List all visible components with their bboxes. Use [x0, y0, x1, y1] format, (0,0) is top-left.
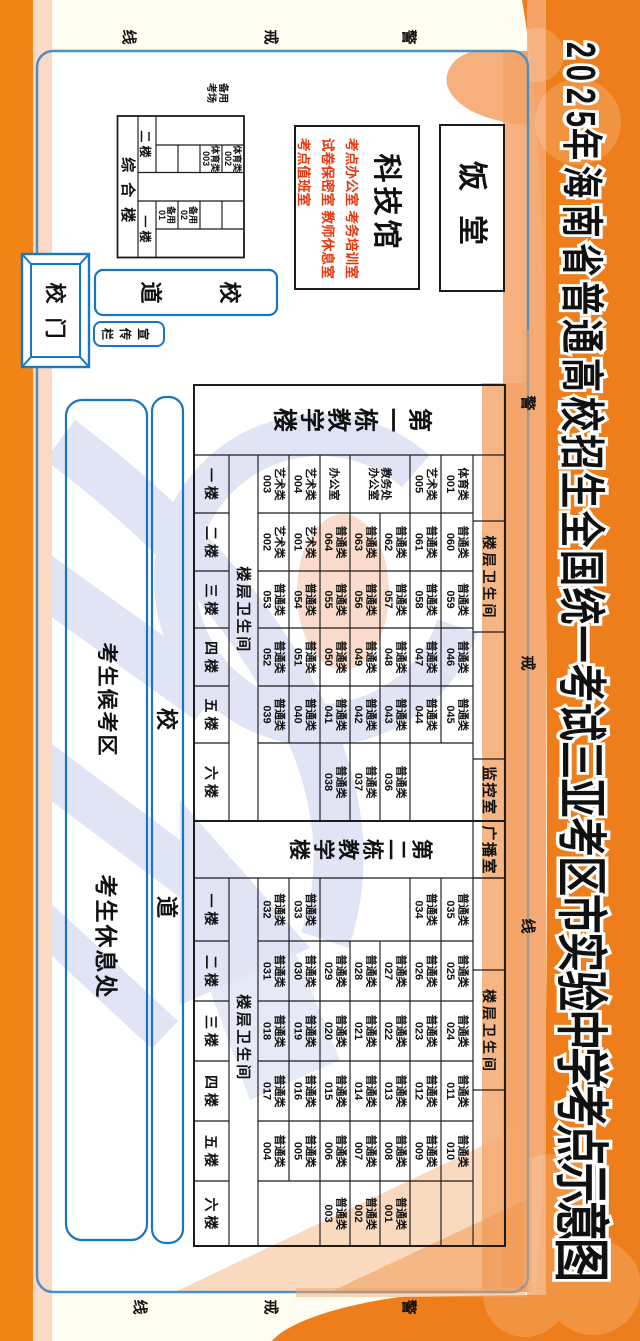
svg-text:市: 市 [552, 894, 610, 934]
svg-text:普通类: 普通类 [394, 1075, 408, 1109]
svg-text:校: 校 [556, 396, 606, 432]
svg-text:线: 线 [120, 29, 138, 44]
svg-text:警: 警 [519, 394, 537, 410]
svg-text:试卷保密室 教师休息室: 试卷保密室 教师休息室 [320, 138, 336, 279]
svg-text:考生候考区: 考生候考区 [95, 643, 119, 758]
svg-text:027: 027 [382, 962, 394, 980]
svg-text:普通类: 普通类 [273, 1015, 287, 1049]
svg-text:道: 道 [154, 896, 179, 918]
svg-text:058: 058 [412, 590, 424, 608]
svg-text:五 楼: 五 楼 [203, 699, 219, 731]
svg-text:003: 003 [260, 475, 272, 493]
svg-text:普通类: 普通类 [425, 583, 439, 617]
svg-text:01: 01 [157, 210, 167, 220]
svg-text:考: 考 [550, 1085, 610, 1127]
svg-text:050: 050 [322, 648, 334, 666]
svg-text:科: 科 [370, 153, 403, 182]
svg-text:018: 018 [260, 1022, 272, 1040]
svg-text:考场: 考场 [205, 83, 218, 103]
svg-text:综合楼: 综合楼 [119, 157, 137, 232]
svg-text:艺术类: 艺术类 [304, 526, 318, 560]
svg-text:004: 004 [260, 1142, 272, 1161]
svg-text:一 楼: 一 楼 [203, 894, 219, 926]
svg-text:全: 全 [555, 510, 606, 547]
svg-text:057: 057 [382, 590, 394, 608]
svg-text:普通类: 普通类 [394, 526, 408, 560]
svg-text:普通类: 普通类 [273, 955, 287, 989]
svg-text:普通类: 普通类 [456, 893, 470, 927]
svg-text:第: 第 [406, 408, 434, 432]
svg-text:002: 002 [352, 1204, 364, 1222]
svg-text:图: 图 [549, 1238, 613, 1282]
svg-text:楼层卫生间: 楼层卫生间 [235, 994, 253, 1082]
svg-text:一: 一 [554, 626, 606, 663]
svg-text:016: 016 [291, 1082, 303, 1100]
svg-text:通: 通 [556, 319, 604, 353]
svg-text:普通类: 普通类 [456, 641, 470, 675]
svg-text:061: 061 [412, 533, 424, 551]
svg-text:024: 024 [444, 1022, 456, 1041]
svg-text:线: 线 [519, 918, 537, 933]
svg-text:普通类: 普通类 [304, 583, 318, 617]
svg-text:005: 005 [291, 1142, 303, 1160]
svg-text:普通类: 普通类 [394, 583, 408, 617]
svg-text:普通类: 普通类 [273, 1075, 287, 1109]
svg-text:普通类: 普通类 [394, 766, 408, 800]
svg-text:广播室: 广播室 [480, 825, 498, 875]
svg-text:艺术类: 艺术类 [273, 468, 287, 502]
svg-text:普通类: 普通类 [304, 1135, 318, 1169]
svg-text:015: 015 [322, 1082, 334, 1100]
svg-text:教: 教 [336, 839, 360, 861]
svg-text:普通类: 普通类 [364, 955, 378, 989]
svg-text:普通类: 普通类 [364, 698, 378, 732]
svg-text:警: 警 [400, 1298, 418, 1314]
svg-text:普通类: 普通类 [364, 1015, 378, 1049]
svg-text:栋: 栋 [361, 839, 385, 860]
svg-text:026: 026 [412, 962, 424, 980]
svg-text:普通类: 普通类 [394, 698, 408, 732]
svg-text:南: 南 [557, 204, 604, 237]
svg-text:045: 045 [444, 705, 456, 723]
svg-text:二: 二 [385, 839, 408, 860]
svg-text:普通类: 普通类 [456, 1015, 470, 1049]
svg-text:实: 实 [552, 932, 610, 972]
svg-text:亚: 亚 [553, 779, 609, 818]
svg-text:教务处: 教务处 [379, 467, 393, 502]
svg-text:门: 门 [43, 318, 67, 339]
svg-text:统: 统 [554, 588, 606, 625]
svg-text:普通类: 普通类 [334, 583, 348, 617]
svg-text:034: 034 [412, 900, 424, 919]
svg-text:学: 学 [298, 408, 326, 432]
svg-text:普通类: 普通类 [334, 1197, 348, 1231]
svg-text:普通类: 普通类 [334, 526, 348, 560]
svg-text:032: 032 [260, 900, 272, 918]
svg-text:普通类: 普通类 [425, 1135, 439, 1169]
svg-text:普通类: 普通类 [394, 955, 408, 989]
svg-text:2: 2 [558, 88, 604, 104]
svg-text:普通类: 普通类 [334, 766, 348, 800]
svg-text:普通类: 普通类 [273, 698, 287, 732]
svg-text:试: 试 [553, 703, 608, 741]
svg-text:一: 一 [379, 408, 406, 432]
svg-text:生: 生 [555, 472, 606, 508]
svg-text:054: 054 [291, 590, 303, 609]
svg-text:戒: 戒 [262, 29, 280, 44]
svg-text:007: 007 [352, 1142, 364, 1160]
svg-text:普通类: 普通类 [364, 526, 378, 560]
svg-text:0: 0 [558, 65, 604, 81]
svg-text:008: 008 [382, 1142, 394, 1160]
svg-text:监控室: 监控室 [480, 766, 498, 816]
svg-text:013: 013 [382, 1082, 394, 1100]
svg-text:普通类: 普通类 [273, 583, 287, 617]
svg-text:招: 招 [556, 434, 606, 469]
svg-text:普通类: 普通类 [364, 583, 378, 617]
svg-text:中: 中 [552, 1009, 611, 1050]
svg-text:009: 009 [412, 1142, 424, 1160]
svg-text:040: 040 [291, 705, 303, 723]
svg-text:一 楼: 一 楼 [138, 215, 153, 242]
svg-text:第: 第 [410, 839, 434, 860]
svg-text:036: 036 [382, 773, 394, 791]
svg-text:普通类: 普通类 [456, 698, 470, 732]
svg-text:校: 校 [43, 283, 67, 305]
svg-text:064: 064 [322, 533, 334, 552]
svg-text:029: 029 [322, 962, 334, 980]
svg-text:030: 030 [291, 962, 303, 980]
svg-text:028: 028 [352, 962, 364, 980]
svg-text:005: 005 [412, 475, 424, 493]
svg-text:考: 考 [553, 818, 609, 857]
svg-text:普通类: 普通类 [425, 893, 439, 927]
svg-text:栏: 栏 [100, 328, 115, 340]
svg-text:办公室: 办公室 [367, 468, 381, 501]
svg-text:普通类: 普通类 [273, 1135, 287, 1169]
svg-text:2: 2 [558, 42, 604, 58]
svg-text:普通类: 普通类 [304, 1015, 318, 1049]
svg-text:一 楼: 一 楼 [203, 468, 219, 500]
svg-text:三 楼: 三 楼 [203, 1015, 219, 1047]
svg-text:普通类: 普通类 [334, 698, 348, 732]
svg-text:普通类: 普通类 [273, 641, 287, 675]
svg-text:二 楼: 二 楼 [203, 526, 219, 558]
svg-text:高: 高 [556, 358, 604, 392]
svg-text:艺术类: 艺术类 [304, 468, 318, 502]
svg-text:031: 031 [260, 962, 272, 980]
svg-text:普通类: 普通类 [364, 766, 378, 800]
svg-text:栋: 栋 [352, 408, 380, 432]
svg-text:线: 线 [131, 1299, 149, 1314]
svg-text:056: 056 [352, 590, 364, 608]
svg-text:普通类: 普通类 [456, 955, 470, 989]
svg-text:堂: 堂 [455, 215, 488, 245]
svg-text:区: 区 [552, 856, 610, 896]
svg-text:年: 年 [558, 128, 604, 160]
svg-text:楼层卫生间: 楼层卫生间 [235, 566, 253, 654]
svg-text:048: 048 [382, 648, 394, 666]
svg-text:普通类: 普通类 [394, 641, 408, 675]
svg-text:普通类: 普通类 [334, 1015, 348, 1049]
svg-text:艺术类: 艺术类 [425, 468, 439, 502]
svg-text:示: 示 [550, 1162, 611, 1205]
svg-text:四 楼: 四 楼 [203, 1075, 219, 1107]
svg-text:办公室: 办公室 [328, 468, 342, 501]
svg-text:053: 053 [260, 590, 272, 608]
svg-text:038: 038 [322, 773, 334, 791]
svg-text:021: 021 [352, 1022, 364, 1040]
svg-text:技: 技 [370, 186, 403, 215]
svg-text:普通类: 普通类 [364, 1197, 378, 1231]
svg-text:考点值班室: 考点值班室 [296, 138, 312, 207]
svg-text:备用: 备用 [217, 82, 230, 103]
svg-text:教: 教 [325, 408, 353, 433]
svg-text:警: 警 [400, 28, 418, 44]
svg-text:059: 059 [444, 590, 456, 608]
svg-text:普通类: 普通类 [456, 526, 470, 560]
svg-text:戒: 戒 [262, 1299, 280, 1314]
svg-text:普通类: 普通类 [304, 893, 318, 927]
svg-text:普通类: 普通类 [334, 1135, 348, 1169]
svg-text:普通类: 普通类 [334, 955, 348, 989]
svg-text:楼: 楼 [287, 839, 310, 860]
svg-text:海: 海 [558, 166, 604, 198]
svg-text:004: 004 [291, 475, 303, 494]
svg-text:006: 006 [322, 1142, 334, 1160]
svg-text:省: 省 [557, 243, 604, 276]
svg-text:普通类: 普通类 [334, 641, 348, 675]
svg-text:验: 验 [552, 970, 611, 1011]
svg-text:019: 019 [291, 1022, 303, 1040]
svg-text:046: 046 [444, 648, 456, 666]
svg-text:049: 049 [352, 648, 364, 666]
svg-text:012: 012 [412, 1082, 424, 1100]
svg-text:考生休息处: 考生休息处 [93, 875, 119, 1000]
svg-text:体育类: 体育类 [456, 468, 470, 502]
svg-text:033: 033 [291, 900, 303, 918]
svg-text:楼: 楼 [271, 408, 298, 432]
svg-text:002: 002 [260, 533, 272, 551]
svg-text:二 楼: 二 楼 [203, 955, 219, 987]
svg-text:010: 010 [444, 1142, 456, 1160]
svg-text:普通类: 普通类 [456, 583, 470, 617]
svg-text:003: 003 [322, 1204, 334, 1222]
svg-text:035: 035 [444, 900, 456, 918]
svg-text:二 楼: 二 楼 [138, 130, 153, 157]
svg-text:普通类: 普通类 [456, 1075, 470, 1109]
svg-text:校: 校 [154, 708, 179, 731]
svg-text:051: 051 [291, 648, 303, 666]
svg-text:普通类: 普通类 [425, 1015, 439, 1049]
svg-text:普通类: 普通类 [273, 893, 287, 927]
svg-text:047: 047 [412, 648, 424, 666]
svg-text:037: 037 [352, 773, 364, 791]
svg-text:五 楼: 五 楼 [203, 1135, 219, 1167]
svg-text:023: 023 [412, 1022, 424, 1040]
svg-text:普通类: 普通类 [304, 698, 318, 732]
svg-text:001: 001 [291, 533, 303, 551]
svg-text:楼层卫生间: 楼层卫生间 [481, 536, 497, 621]
svg-text:062: 062 [382, 533, 394, 551]
svg-text:011: 011 [444, 1082, 456, 1100]
svg-text:普通类: 普通类 [364, 1135, 378, 1169]
svg-text:025: 025 [444, 962, 456, 980]
svg-text:017: 017 [260, 1082, 272, 1100]
svg-text:六 楼: 六 楼 [203, 1198, 219, 1230]
svg-text:002: 002 [223, 151, 233, 166]
svg-text:普通类: 普通类 [304, 1075, 318, 1109]
svg-text:普通类: 普通类 [425, 698, 439, 732]
svg-text:022: 022 [382, 1022, 394, 1040]
svg-text:学: 学 [312, 839, 336, 860]
svg-text:044: 044 [412, 705, 424, 724]
svg-text:艺术类: 艺术类 [273, 526, 287, 560]
svg-text:普通类: 普通类 [304, 641, 318, 675]
svg-text:普通类: 普通类 [425, 641, 439, 675]
svg-text:020: 020 [322, 1022, 334, 1040]
svg-text:043: 043 [382, 705, 394, 723]
svg-text:042: 042 [352, 705, 364, 723]
svg-text:四 楼: 四 楼 [203, 641, 219, 673]
svg-text:060: 060 [444, 533, 456, 551]
svg-text:普通类: 普通类 [394, 1015, 408, 1049]
svg-text:国: 国 [555, 550, 606, 586]
svg-text:052: 052 [260, 648, 272, 666]
svg-text:041: 041 [322, 705, 334, 723]
svg-text:055: 055 [322, 590, 334, 608]
svg-text:02: 02 [179, 210, 189, 220]
svg-text:普通类: 普通类 [394, 1135, 408, 1169]
svg-text:001: 001 [444, 475, 456, 493]
svg-text:普通类: 普通类 [334, 1075, 348, 1109]
svg-text:普: 普 [556, 281, 604, 315]
svg-text:003: 003 [201, 151, 211, 166]
svg-text:014: 014 [352, 1082, 364, 1101]
svg-text:普通类: 普通类 [425, 526, 439, 560]
svg-text:063: 063 [352, 533, 364, 551]
svg-text:三 楼: 三 楼 [203, 584, 219, 616]
svg-text:道: 道 [138, 281, 163, 303]
svg-text:戒: 戒 [519, 655, 537, 670]
svg-text:饭: 饭 [455, 161, 488, 191]
svg-text:考: 考 [553, 664, 608, 702]
svg-text:普通类: 普通类 [425, 955, 439, 989]
svg-text:三: 三 [553, 741, 608, 779]
svg-text:六 楼: 六 楼 [203, 766, 219, 798]
svg-text:传: 传 [118, 327, 133, 340]
svg-text:楼层卫生间: 楼层卫生间 [481, 989, 497, 1074]
svg-text:宣: 宣 [136, 328, 151, 340]
svg-text:考点办公室 考务培训室: 考点办公室 考务培训室 [344, 138, 360, 279]
svg-text:普通类: 普通类 [425, 1075, 439, 1109]
svg-text:039: 039 [260, 705, 272, 723]
svg-text:普通类: 普通类 [364, 1075, 378, 1109]
svg-text:点: 点 [550, 1124, 610, 1166]
svg-text:001: 001 [382, 1204, 394, 1222]
svg-text:学: 学 [550, 1047, 610, 1089]
svg-text:5: 5 [558, 111, 604, 127]
svg-text:普通类: 普通类 [456, 1135, 470, 1169]
svg-text:普通类: 普通类 [364, 641, 378, 675]
svg-text:普通类: 普通类 [304, 955, 318, 989]
svg-text:校: 校 [217, 281, 242, 304]
svg-text:普通类: 普通类 [394, 1197, 408, 1231]
svg-text:馆: 馆 [370, 219, 404, 248]
